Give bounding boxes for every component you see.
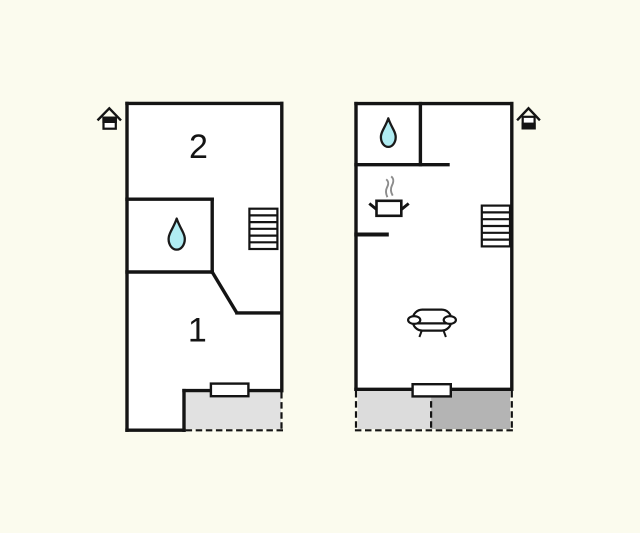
svg-text:2: 2 bbox=[189, 128, 208, 166]
svg-text:1: 1 bbox=[188, 312, 207, 350]
